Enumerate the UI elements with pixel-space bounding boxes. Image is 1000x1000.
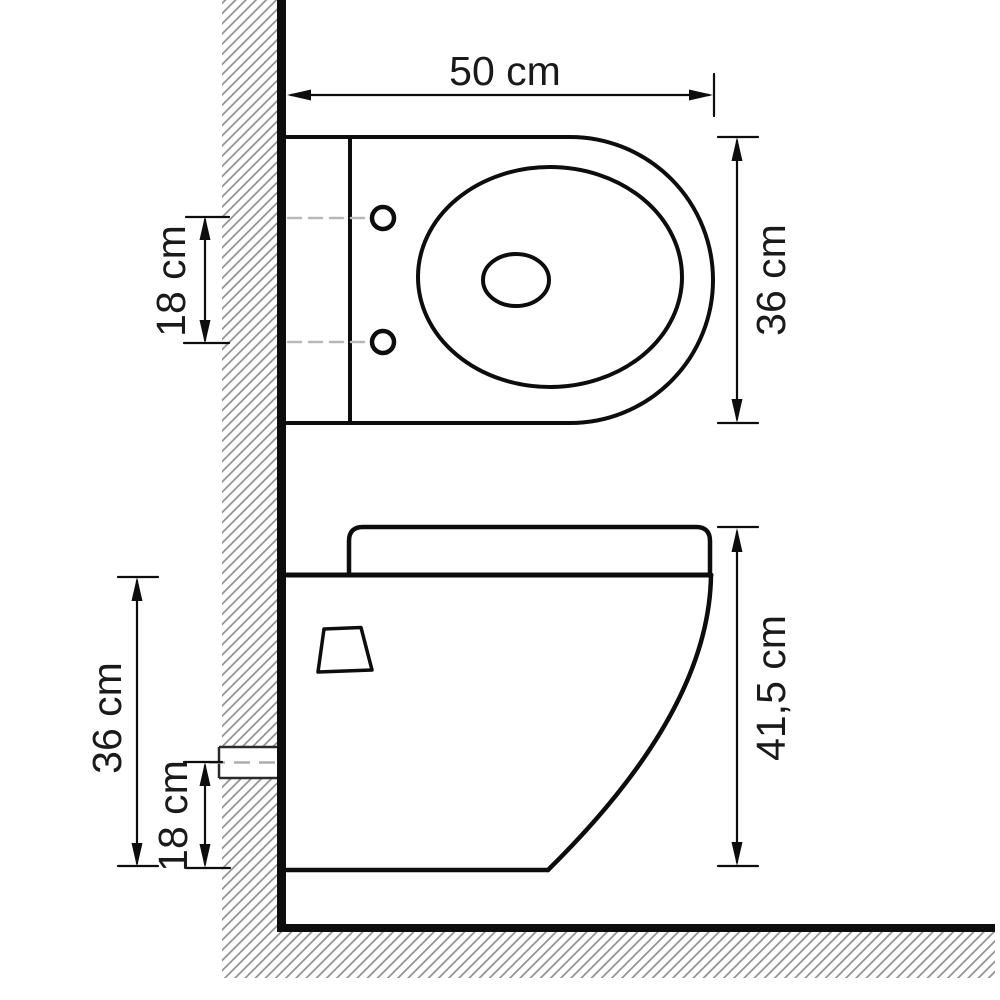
mount-hole-top: [372, 207, 394, 229]
dim-label-side-rim-height: 36 cm: [84, 662, 130, 774]
toilet-dimension-diagram: 50 cm 18 cm 36 cm 36 cm: [0, 0, 1000, 1000]
dim-label-top-hole-spacing: 18 cm: [148, 225, 194, 337]
dim-label-top-depth: 36 cm: [748, 224, 794, 336]
floor-line: [277, 924, 995, 932]
dim-label-top-width: 50 cm: [449, 48, 561, 94]
dim-label-side-outlet-height: 18 cm: [150, 760, 196, 872]
mount-hole-bottom: [372, 331, 394, 353]
dim-label-side-total-height: 41,5 cm: [748, 615, 794, 761]
seat-lid-outline: [349, 527, 710, 575]
wall-face-line: [277, 0, 286, 932]
top-view: [287, 137, 713, 423]
technical-drawing-page: 50 cm 18 cm 36 cm 36 cm: [0, 0, 1000, 1000]
flush-inspection-panel: [318, 628, 372, 673]
